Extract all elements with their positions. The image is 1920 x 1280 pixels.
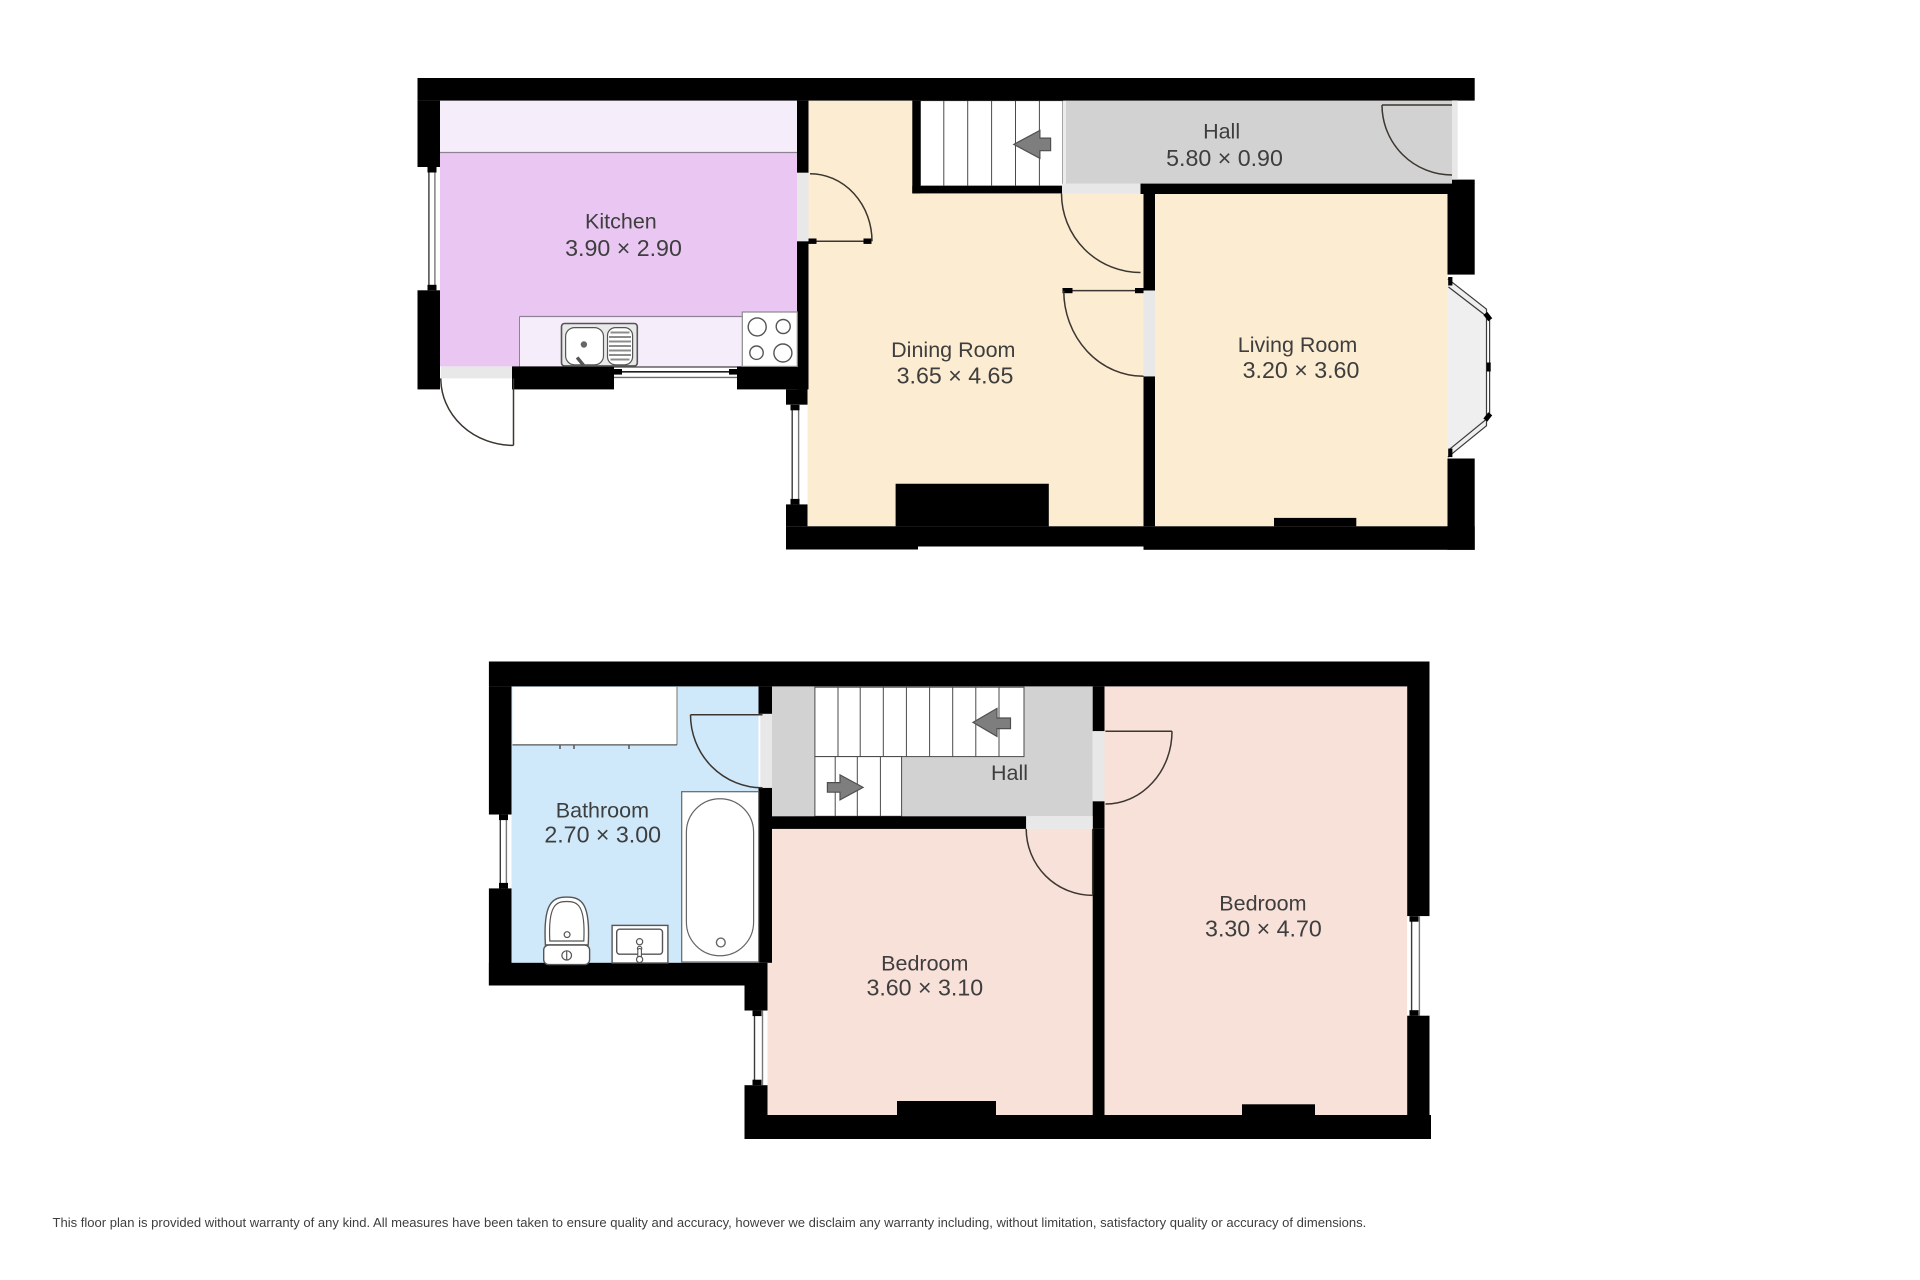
svg-text:3.60 × 3.10: 3.60 × 3.10 bbox=[866, 974, 983, 1000]
svg-text:Bedroom: Bedroom bbox=[1219, 892, 1306, 916]
svg-text:Dining Room: Dining Room bbox=[891, 338, 1015, 362]
svg-text:Kitchen: Kitchen bbox=[585, 210, 657, 234]
svg-text:2.70 × 3.00: 2.70 × 3.00 bbox=[544, 822, 661, 848]
svg-text:3.90 × 2.90: 3.90 × 2.90 bbox=[565, 235, 682, 261]
svg-text:This floor plan is provided wi: This floor plan is provided without warr… bbox=[53, 1215, 1367, 1230]
svg-text:Hall: Hall bbox=[991, 761, 1028, 785]
svg-text:5.80 × 0.90: 5.80 × 0.90 bbox=[1166, 145, 1283, 171]
svg-text:Bathroom: Bathroom bbox=[556, 798, 649, 822]
svg-text:3.30 × 4.70: 3.30 × 4.70 bbox=[1205, 915, 1322, 941]
svg-text:3.20 × 3.60: 3.20 × 3.60 bbox=[1243, 357, 1360, 383]
svg-text:Living Room: Living Room bbox=[1238, 333, 1358, 357]
svg-text:Bedroom: Bedroom bbox=[881, 951, 968, 975]
svg-text:3.65 × 4.65: 3.65 × 4.65 bbox=[897, 362, 1014, 388]
svg-text:Hall: Hall bbox=[1203, 119, 1240, 143]
